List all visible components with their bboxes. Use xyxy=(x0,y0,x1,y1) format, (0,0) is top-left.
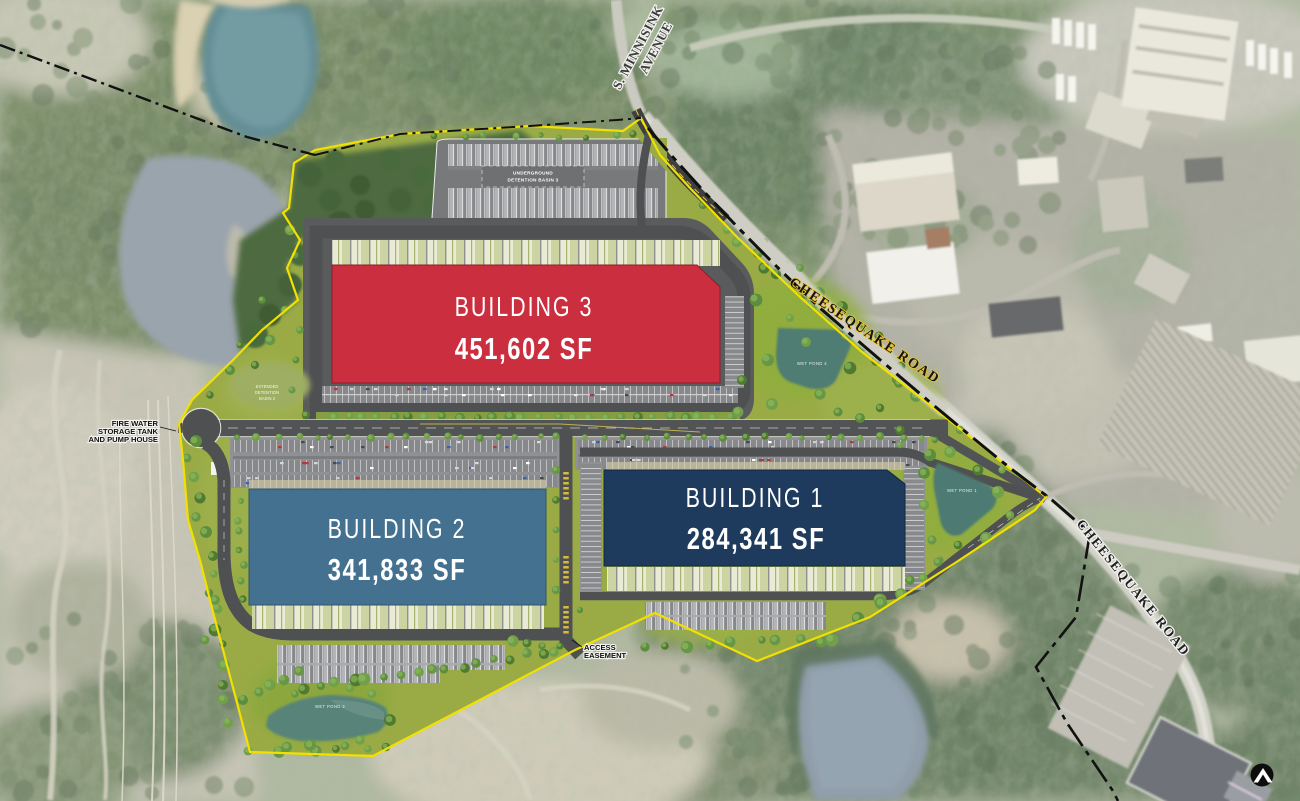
svg-text:UNDERGROUND: UNDERGROUND xyxy=(513,171,553,176)
svg-text:BUILDING 3: BUILDING 3 xyxy=(455,293,594,323)
svg-text:WET POND 3: WET POND 3 xyxy=(315,704,345,709)
svg-text:284,341 SF: 284,341 SF xyxy=(687,521,826,556)
svg-text:WET POND 1: WET POND 1 xyxy=(947,488,977,493)
svg-text:AND PUMP HOUSE: AND PUMP HOUSE xyxy=(89,435,158,444)
svg-text:BUILDING 2: BUILDING 2 xyxy=(328,515,467,545)
svg-text:451,602 SF: 451,602 SF xyxy=(455,331,594,366)
svg-text:BUILDING 1: BUILDING 1 xyxy=(686,484,825,514)
svg-text:EASEMENT: EASEMENT xyxy=(584,651,627,660)
svg-text:341,833 SF: 341,833 SF xyxy=(328,552,467,587)
svg-text:WET POND 4: WET POND 4 xyxy=(797,361,827,366)
svg-text:DETENTION: DETENTION xyxy=(255,390,279,395)
svg-text:BASIN 2: BASIN 2 xyxy=(259,396,276,401)
svg-text:DETENTION BASIN 3: DETENTION BASIN 3 xyxy=(507,178,558,183)
svg-text:EXTENDED: EXTENDED xyxy=(256,384,279,389)
